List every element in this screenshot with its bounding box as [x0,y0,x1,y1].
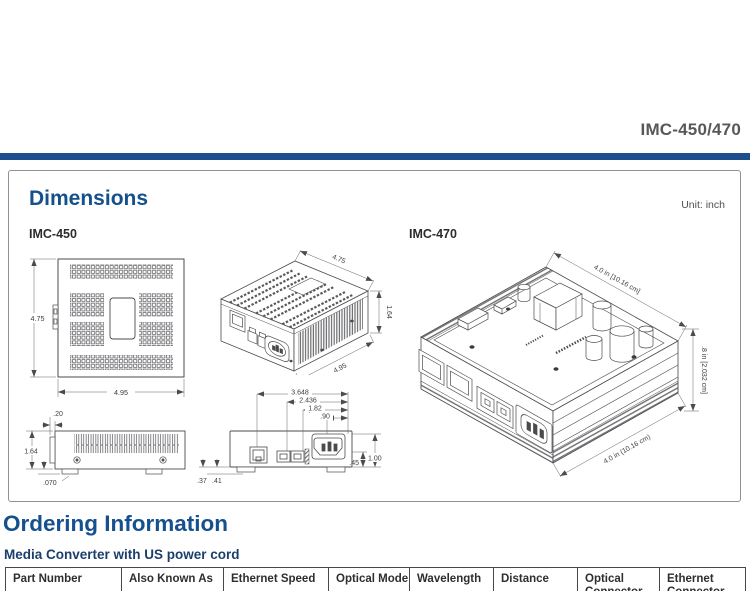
dim-label-foot: .070 [43,480,57,487]
power-inlet [312,434,345,459]
product-code: IMC-450/470 [641,120,741,140]
dim-label-power: .90 [320,414,330,421]
imc450-top-view-drawing: 4.75 4.95 [25,251,200,401]
dim-label-height: 1.64 [385,305,392,319]
column-header-ethernet-speed: Ethernet Speed [224,568,329,591]
dim-label-height: .8 in [2.032 cm] [700,346,707,394]
vent-slots [74,434,179,453]
column-header-also-known-as: Also Known As [122,568,224,591]
imc450-rear-view-drawing: 3.648 2.436 1.82 .90 .37 .41 .45 [195,381,390,493]
center-cutout [110,298,135,339]
dim-label-width: 4.95 [114,388,128,397]
unit-label: Unit: inch [681,199,725,211]
feet [62,469,162,474]
dim-label-left-b: .41 [212,478,222,485]
dim-label-depth: 4.75 [31,314,45,323]
rj45-port [250,447,267,463]
ordering-subtitle: Media Converter with US power cord [4,547,747,562]
imc470-iso-view-drawing: 4.0 in [10.16 cm] .8 in [2.032 cm] 4.0 i… [406,245,741,485]
dim-label-top: 4.0 in [10.16 cm] [592,264,641,295]
dimension-height [682,329,699,411]
dim-label-right-a: .45 [349,460,359,467]
dim-label-fiber2: 1.82 [308,406,322,413]
header-rule [0,153,750,160]
column-header-part-number: Part Number [6,568,122,591]
dimension-height [370,291,382,333]
side-tab [50,437,55,463]
fiber-ports [277,449,309,464]
imc450-side-view-drawing: .20 1.64 .070 [18,407,203,495]
ordering-title: Ordering Information [3,511,747,537]
dimensions-title: Dimensions [29,187,148,211]
dim-label-right-b: 1.00 [368,456,382,463]
column-header-optical-connector: Optical Connector [578,568,660,591]
ordering-table: Part Number Also Known As Ethernet Speed… [5,567,746,591]
column-header-optical-mode: Optical Mode [329,568,410,591]
dim-label-depth: 4.75 [331,254,346,266]
dimensions-panel: Dimensions Unit: inch IMC-450 IMC-470 [8,170,741,502]
dim-label-rj45: 3.648 [291,390,309,397]
dim-label-height: 1.64 [24,449,38,456]
side-tab [53,305,58,329]
dim-label-width: 4.95 [333,362,348,375]
ordering-section: Ordering Information Media Converter wit… [3,511,747,591]
column-header-distance: Distance [494,568,578,591]
feet [237,467,345,472]
column-header-ethernet-connector: Ethernet Connector [660,568,746,591]
dim-label-fiber: 2.436 [299,398,317,405]
column-header-wavelength: Wavelength [410,568,494,591]
model-label-imc450: IMC-450 [29,227,77,241]
model-label-imc470: IMC-470 [409,227,457,241]
dim-label-left-a: .37 [197,478,207,485]
imc450-iso-view-drawing: 4.75 1.64 4.95 [203,247,393,375]
table-header-row: Part Number Also Known As Ethernet Speed… [6,568,746,591]
dim-label-lip: .20 [53,411,63,418]
datasheet-page: { "page": { "product_code": "IMC-450/470… [0,0,750,591]
